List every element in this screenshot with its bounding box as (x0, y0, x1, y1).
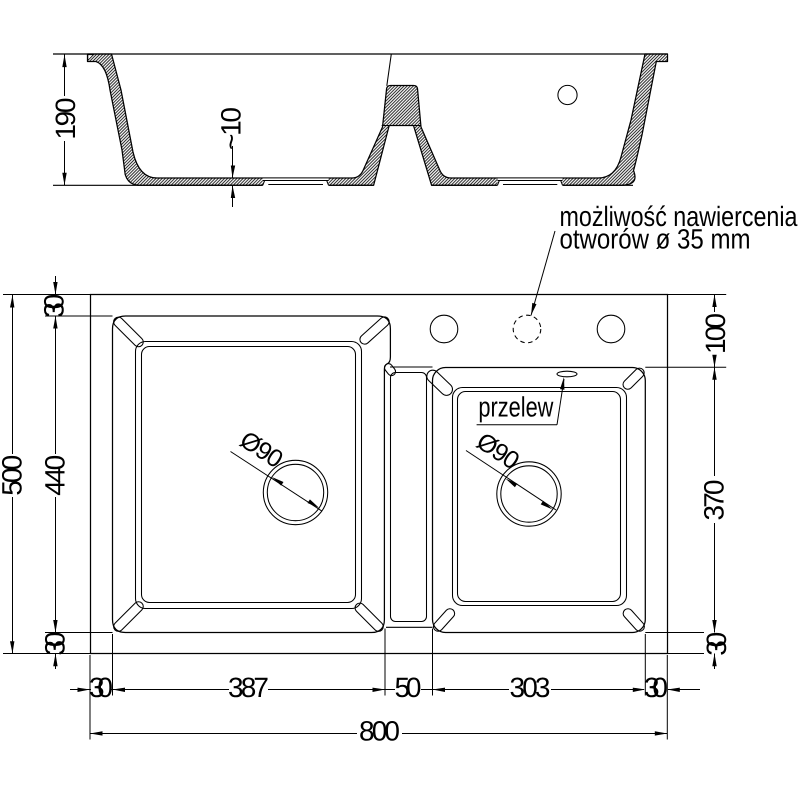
svg-text:50: 50 (395, 672, 422, 703)
svg-text:30: 30 (701, 632, 732, 656)
svg-text:100: 100 (700, 313, 731, 354)
svg-text:190: 190 (50, 98, 81, 140)
svg-text:440: 440 (40, 455, 71, 496)
svg-text:przelew: przelew (478, 391, 554, 422)
svg-text:500: 500 (0, 455, 27, 496)
svg-text:370: 370 (699, 480, 730, 521)
svg-text:303: 303 (510, 672, 551, 703)
svg-text:387: 387 (228, 672, 269, 703)
svg-text:~10: ~10 (216, 107, 247, 150)
svg-text:30: 30 (89, 672, 113, 703)
svg-text:800: 800 (359, 715, 400, 746)
svg-text:otworów ø 35 mm: otworów ø 35 mm (560, 224, 751, 255)
svg-text:30: 30 (39, 294, 70, 318)
svg-text:30: 30 (40, 632, 71, 656)
svg-text:30: 30 (644, 672, 668, 703)
